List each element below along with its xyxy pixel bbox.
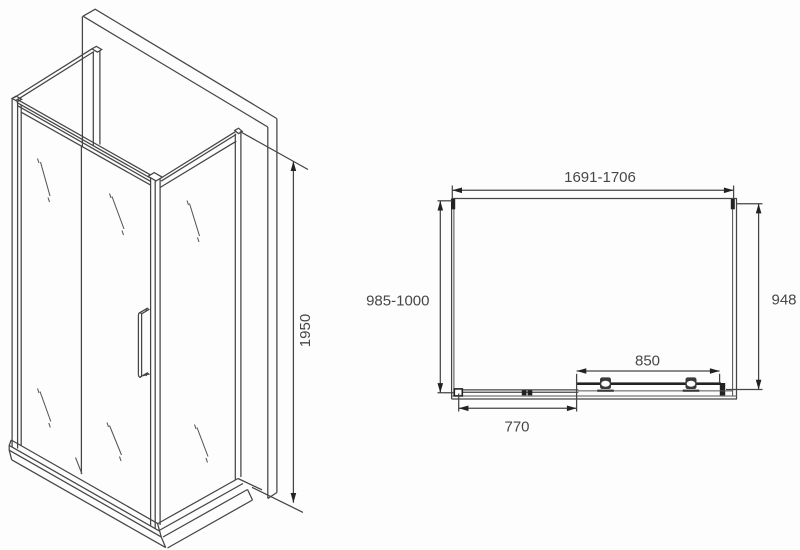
svg-text:1950: 1950	[297, 314, 314, 347]
svg-text:770: 770	[504, 419, 529, 436]
svg-text:985-1000: 985-1000	[366, 293, 429, 310]
svg-text:948: 948	[771, 292, 796, 309]
svg-text:850: 850	[635, 353, 660, 370]
svg-text:1691-1706: 1691-1706	[564, 169, 636, 186]
